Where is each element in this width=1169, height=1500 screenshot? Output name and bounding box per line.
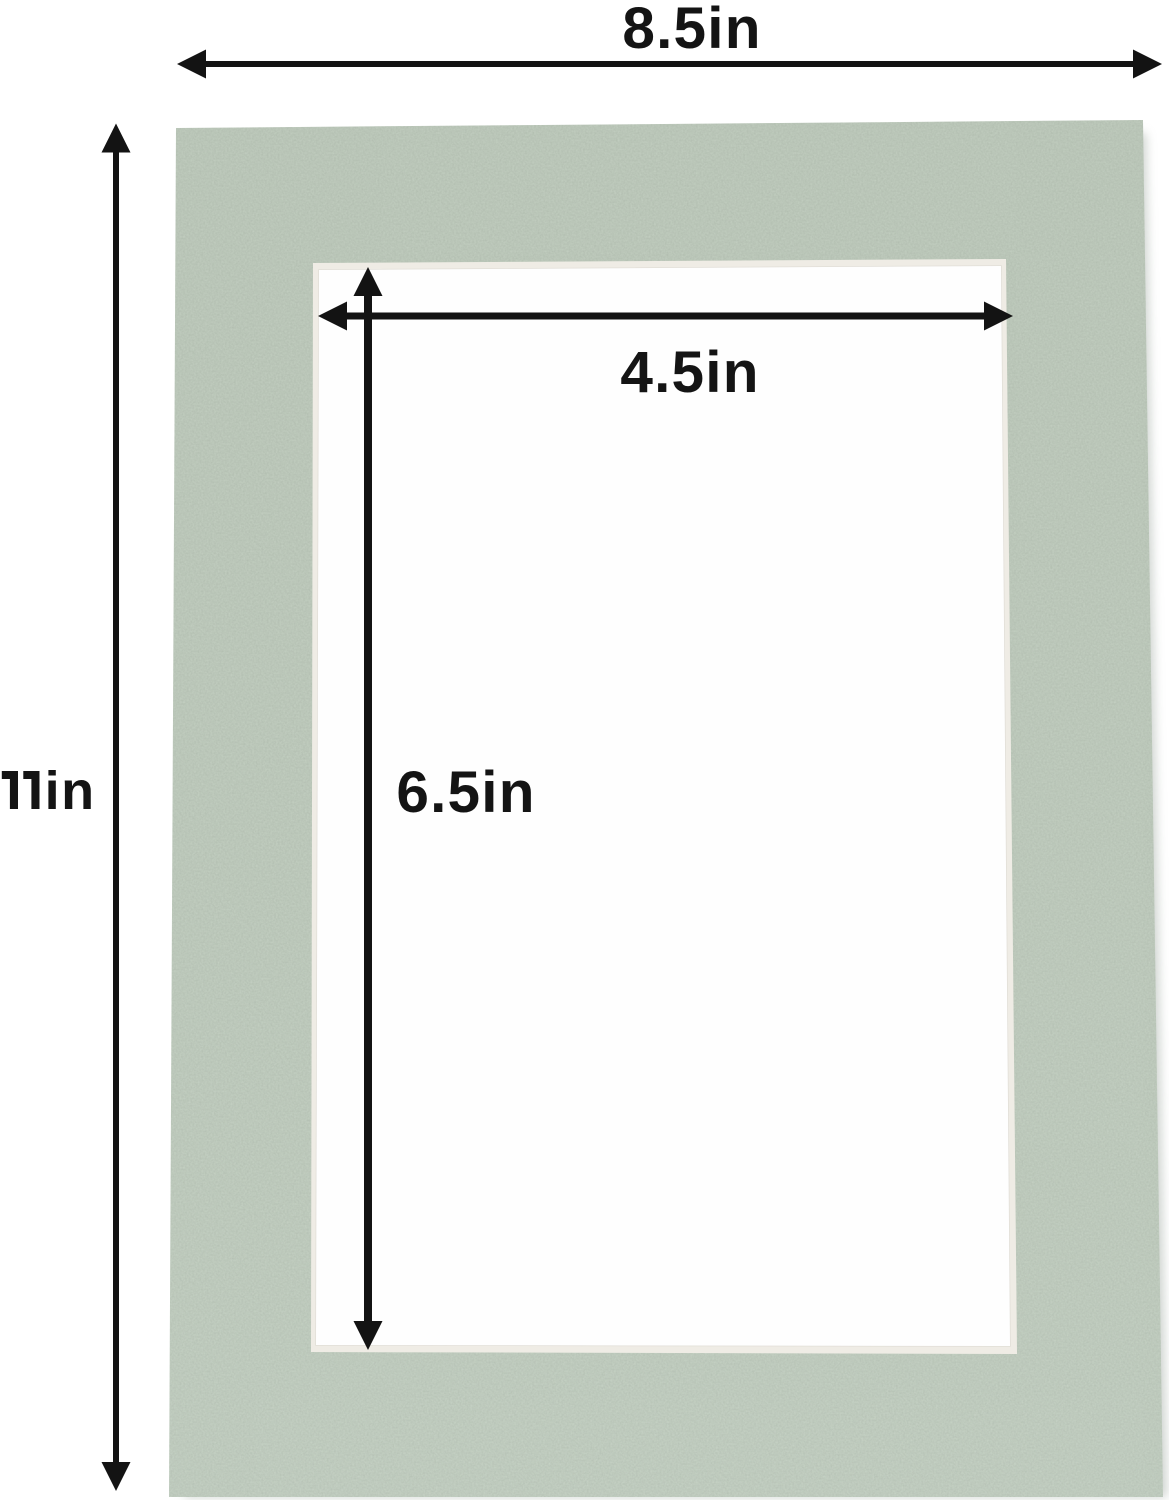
svg-text:4.5in: 4.5in xyxy=(620,340,759,405)
svg-text:8.5in: 8.5in xyxy=(622,0,761,61)
svg-text:6.5in: 6.5in xyxy=(396,760,535,825)
svg-text:in: in xyxy=(45,761,96,821)
